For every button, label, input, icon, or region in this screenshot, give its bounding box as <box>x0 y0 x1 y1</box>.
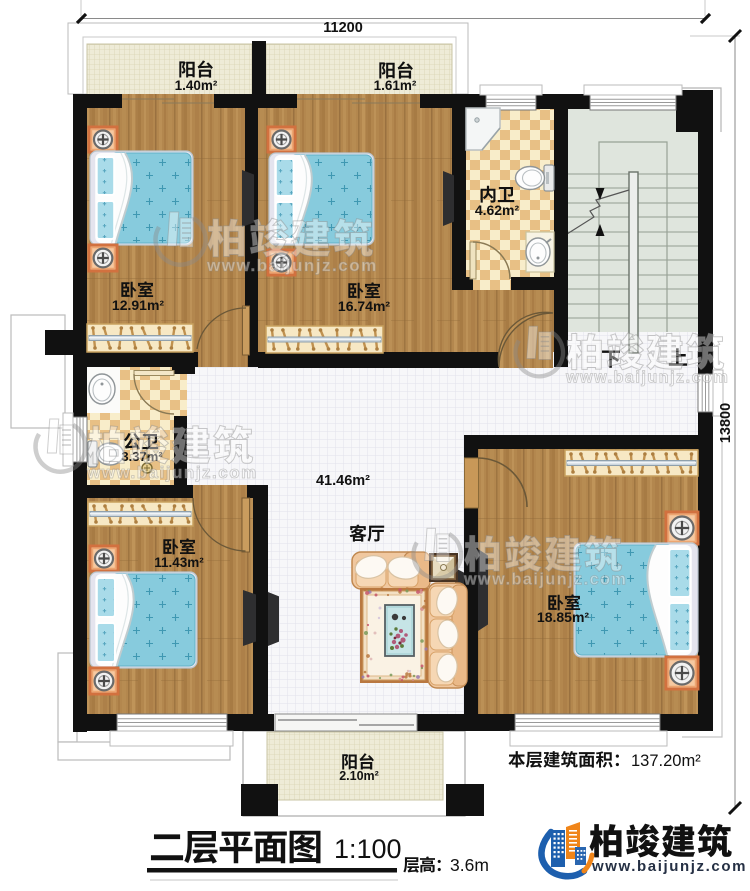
svg-text:www.baijunjz.com: www.baijunjz.com <box>565 369 729 387</box>
svg-text:3.6m: 3.6m <box>450 855 489 875</box>
svg-text:12.91m²: 12.91m² <box>112 297 164 313</box>
svg-text:www.baijunjz.com: www.baijunjz.com <box>206 256 378 275</box>
svg-text:www.baijunjz.com: www.baijunjz.com <box>463 571 627 589</box>
svg-text:137.20m²: 137.20m² <box>631 752 701 770</box>
svg-text:4.62m²: 4.62m² <box>475 202 520 218</box>
svg-text:1.40m²: 1.40m² <box>175 78 218 93</box>
svg-text:41.46m²: 41.46m² <box>316 473 370 489</box>
svg-text:1.61m²: 1.61m² <box>374 78 417 93</box>
svg-text:1:100: 1:100 <box>334 834 402 864</box>
svg-text:2.10m²: 2.10m² <box>339 769 379 783</box>
svg-text:11200: 11200 <box>323 20 363 36</box>
svg-text:11.43m²: 11.43m² <box>154 555 204 570</box>
svg-text:www.baijunjz.com: www.baijunjz.com <box>591 858 747 875</box>
svg-text:www.baijunjz.com: www.baijunjz.com <box>86 463 258 482</box>
svg-text:13800: 13800 <box>718 403 734 443</box>
svg-text:16.74m²: 16.74m² <box>338 298 390 314</box>
svg-text:18.85m²: 18.85m² <box>537 609 589 625</box>
